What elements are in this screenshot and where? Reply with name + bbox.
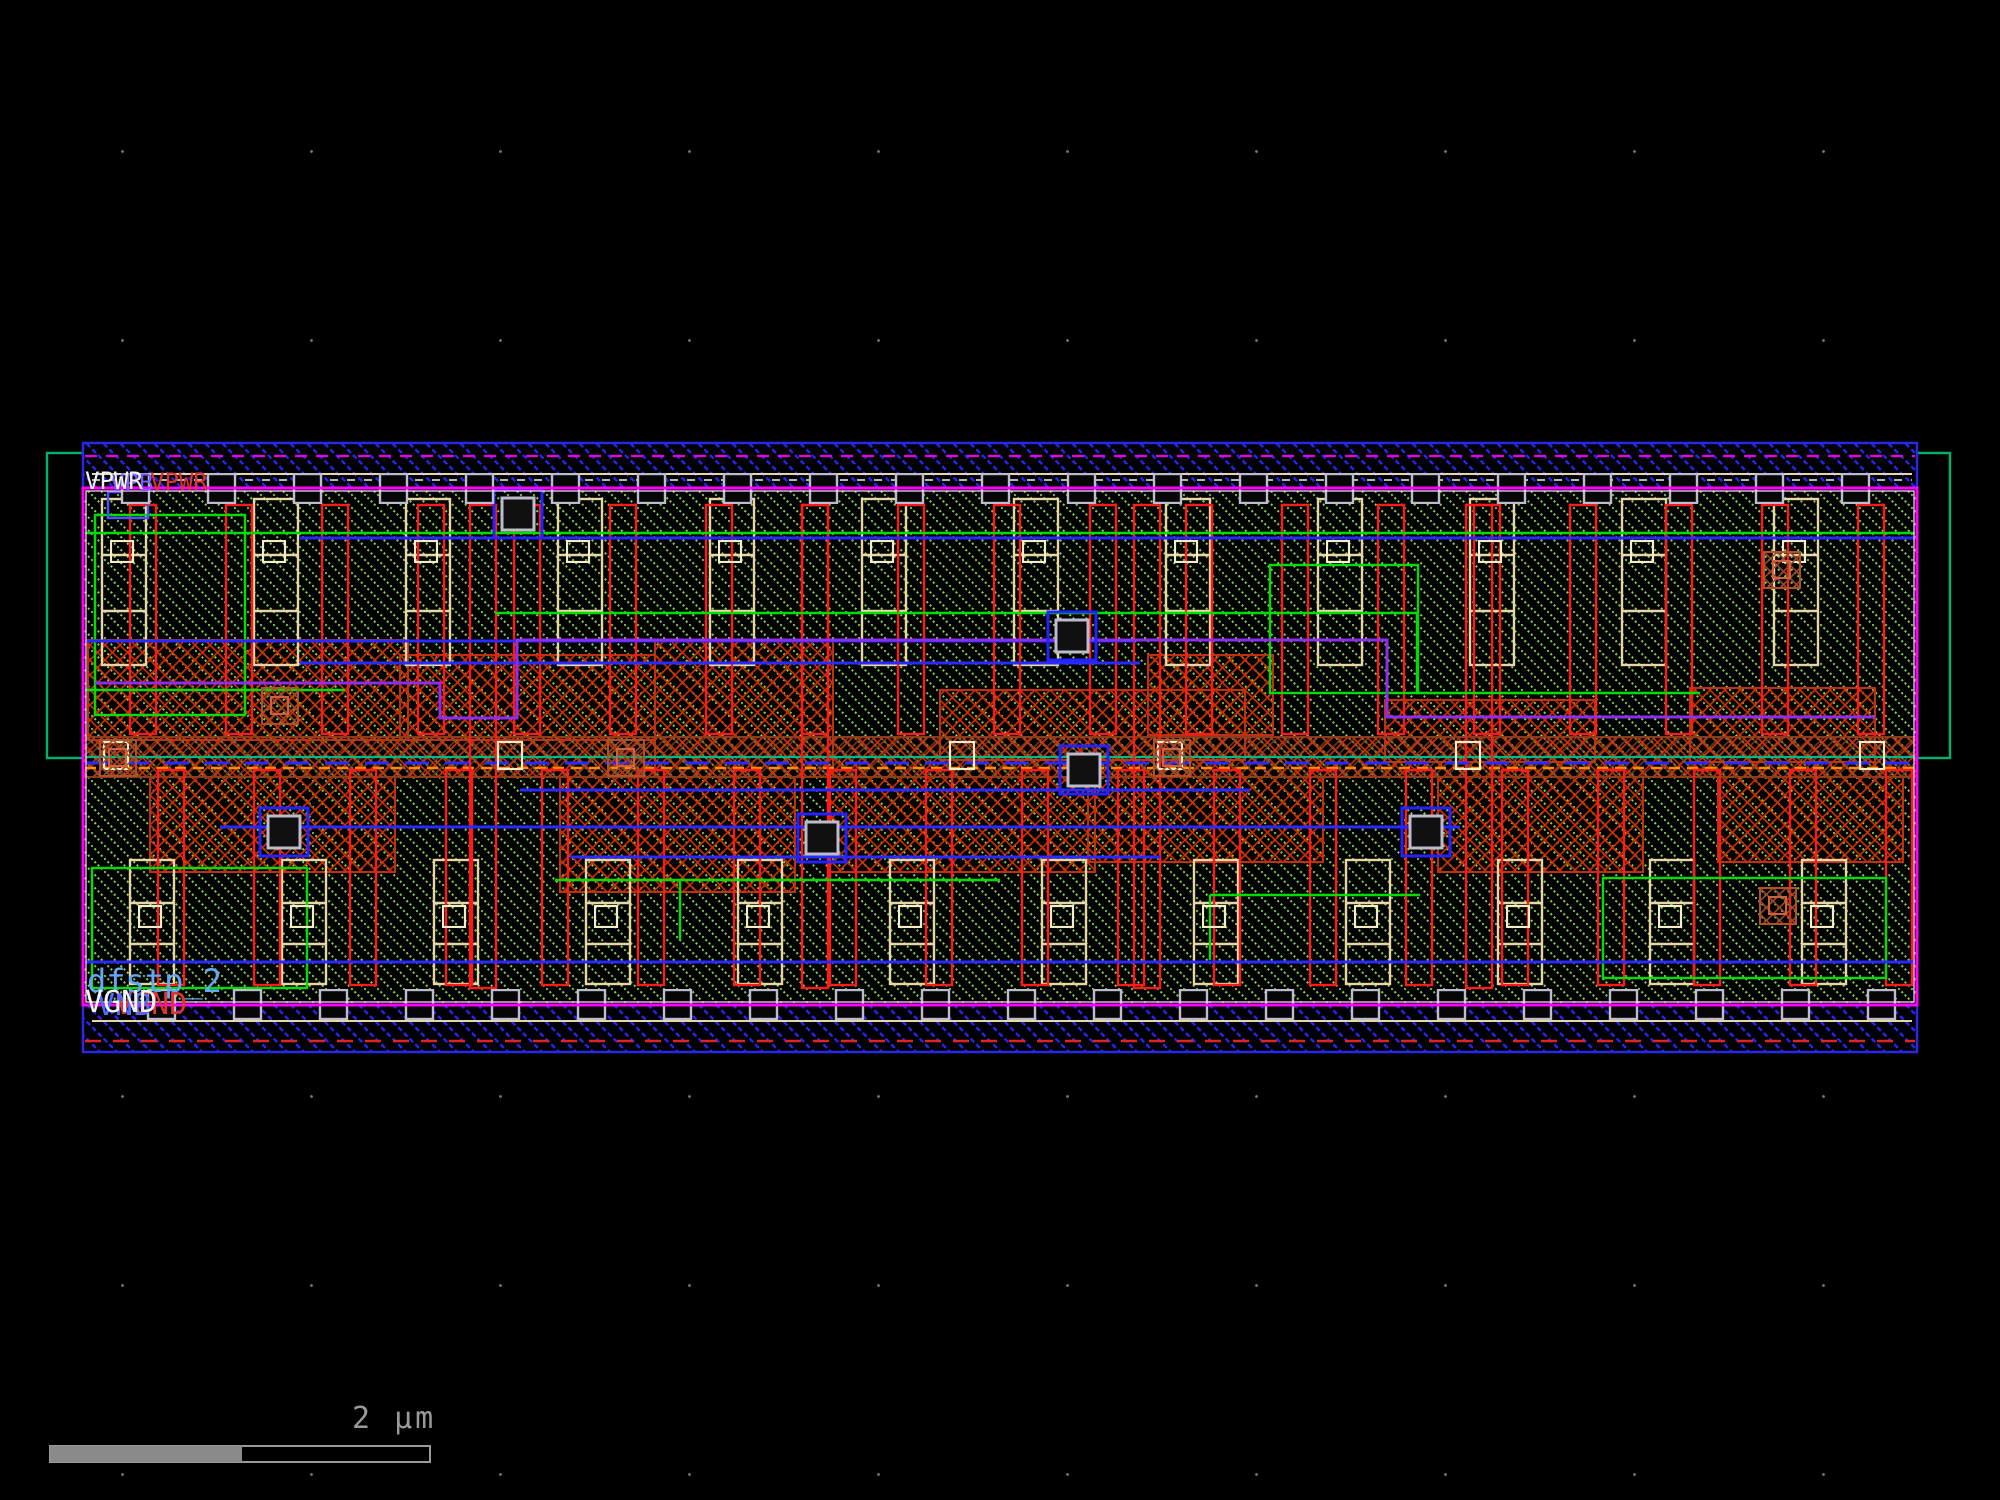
ground-label: VGND [85, 985, 157, 1020]
power-label: VPWR [85, 467, 143, 495]
layout-canvas[interactable]: VPWR VPB VPWR dfstp_2 VGND VNB VGND 2 µm [0, 0, 2000, 1500]
scale-bar: 2 µm [50, 1401, 436, 1462]
scale-bar-label: 2 µm [352, 1401, 436, 1436]
power-rail-labels: VPWR VPB VPWR [85, 467, 208, 497]
ground-rail-labels: VGND VNB VGND [85, 985, 187, 1023]
power-label-red: VPWR [150, 468, 208, 496]
contacts-top-row [100, 540, 1900, 563]
layout-viewer-window: VPWR VPB VPWR dfstp_2 VGND VNB VGND 2 µm [0, 0, 2000, 1500]
contacts-bottom-row [128, 905, 1928, 928]
